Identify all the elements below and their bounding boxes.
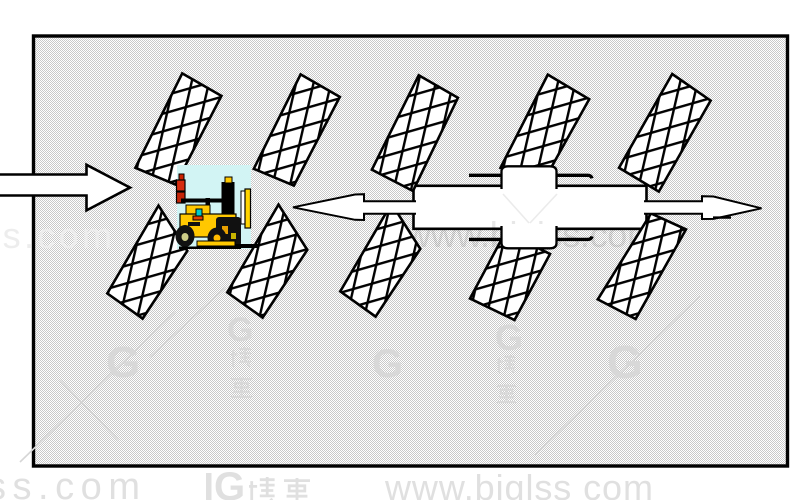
svg-text:G: G — [495, 317, 523, 358]
svg-text:lss.com: lss.com — [0, 466, 140, 500]
svg-text:G: G — [227, 311, 253, 349]
svg-text:G: G — [372, 342, 403, 386]
svg-text:G: G — [106, 338, 140, 387]
svg-text:G: G — [607, 336, 643, 388]
svg-text:G: G — [214, 465, 245, 500]
svg-text:www.biglss com: www.biglss com — [384, 467, 653, 500]
